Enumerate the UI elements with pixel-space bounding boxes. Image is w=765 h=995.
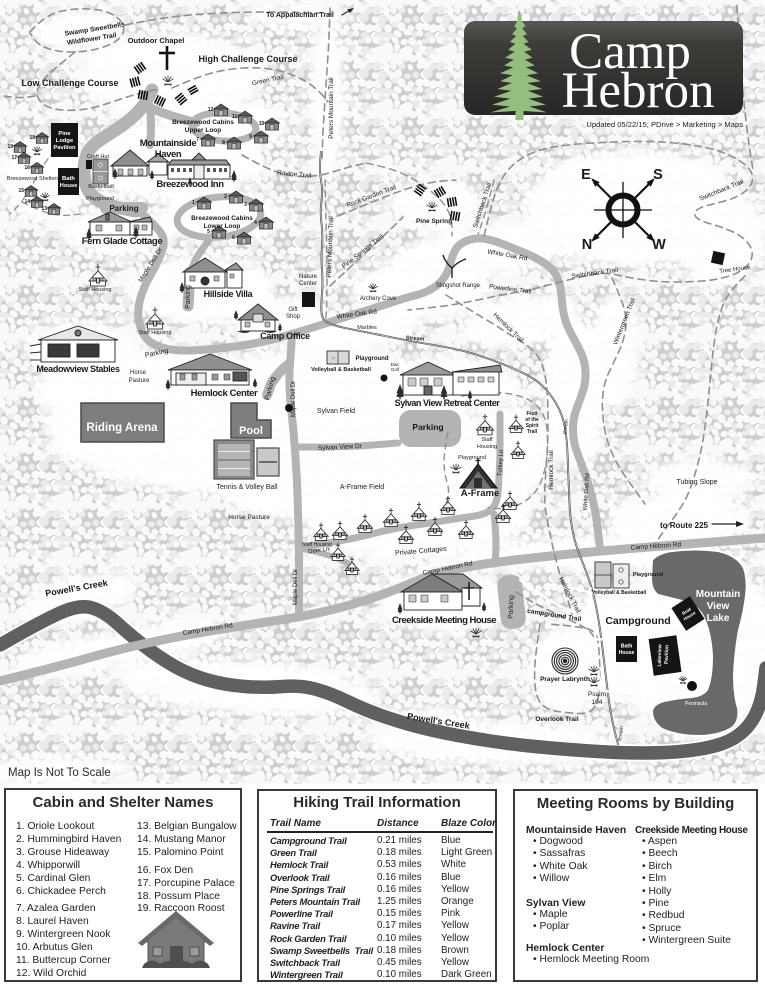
svg-text:Bath: Bath <box>621 644 633 650</box>
svg-text:Slingshot Range: Slingshot Range <box>436 283 481 289</box>
svg-text:E: E <box>581 167 591 183</box>
svg-text:19: 19 <box>7 144 13 150</box>
svg-text:Camp Office: Camp Office <box>260 331 310 341</box>
svg-text:Hebron: Hebron <box>562 63 715 119</box>
svg-text:Haven: Haven <box>155 149 182 160</box>
svg-text:Golf: Golf <box>391 367 400 372</box>
svg-text:Lakeview: Lakeview <box>657 644 664 667</box>
svg-text:Staff Housing: Staff Housing <box>139 330 172 336</box>
svg-text:7: 7 <box>196 137 199 143</box>
svg-text:Peters Mountain Trail: Peters Mountain Trail <box>328 77 335 139</box>
svg-text:4: 4 <box>254 220 257 226</box>
svg-text:Playground: Playground <box>86 196 114 202</box>
svg-text:Breezewood Cabins: Breezewood Cabins <box>191 215 253 222</box>
svg-text:House: House <box>619 650 635 656</box>
svg-text:Shop: Shop <box>286 314 301 320</box>
svg-text:Creekside Meeting House: Creekside Meeting House <box>392 615 496 626</box>
svg-text:Meadowview Stables: Meadowview Stables <box>36 364 120 374</box>
svg-text:Map Is Not To Scale: Map Is Not To Scale <box>8 767 111 779</box>
svg-text:Overlook Trail: Overlook Trail <box>535 716 579 723</box>
svg-text:10: 10 <box>259 121 265 127</box>
svg-text:To Appalachian Trail: To Appalachian Trail <box>266 12 334 19</box>
svg-text:18: 18 <box>29 135 35 141</box>
svg-text:A-Frame Field: A-Frame Field <box>340 484 384 491</box>
svg-text:Tennis & Volley Ball: Tennis & Volley Ball <box>216 484 278 491</box>
svg-text:Tubing Slope: Tubing Slope <box>677 479 718 486</box>
svg-text:Fern Glade Cottage: Fern Glade Cottage <box>82 236 163 247</box>
svg-text:Volleyball & Basketball: Volleyball & Basketball <box>592 590 647 596</box>
svg-text:12: 12 <box>208 107 214 113</box>
svg-text:Updated 05/22/15; PDrive > Mar: Updated 05/22/15; PDrive > Marketing > M… <box>586 120 743 129</box>
svg-text:Campground: Campground <box>605 615 670 627</box>
svg-text:Lower Loop: Lower Loop <box>204 223 241 230</box>
svg-text:N: N <box>582 237 592 253</box>
svg-text:High Challenge Course: High Challenge Course <box>198 54 297 64</box>
svg-text:Center: Center <box>299 281 317 287</box>
svg-text:Maple Dell Dr: Maple Dell Dr <box>291 381 297 417</box>
svg-text:Breezewood Cabins: Breezewood Cabins <box>172 119 234 126</box>
svg-text:Prayer Labrynth: Prayer Labrynth <box>540 676 590 683</box>
svg-text:6: 6 <box>232 235 235 241</box>
svg-text:Archery Cove: Archery Cove <box>360 296 397 302</box>
svg-text:Parking: Parking <box>185 285 192 309</box>
svg-text:Peninsula: Peninsula <box>685 701 707 707</box>
svg-text:Mountain: Mountain <box>696 589 740 600</box>
svg-text:W: W <box>652 237 666 253</box>
svg-text:14: 14 <box>24 199 30 205</box>
svg-text:Marbles: Marbles <box>357 325 377 331</box>
svg-text:3: 3 <box>244 202 247 208</box>
svg-text:Hemlock Center: Hemlock Center <box>191 388 258 399</box>
svg-text:Psalm: Psalm <box>588 691 606 698</box>
svg-text:Low Challenge Course: Low Challenge Course <box>21 78 118 88</box>
svg-text:Housing: Housing <box>477 444 497 450</box>
svg-text:Parking: Parking <box>109 204 138 213</box>
svg-text:Pavilion: Pavilion <box>53 145 76 151</box>
svg-text:Lodge: Lodge <box>56 138 74 144</box>
svg-text:Playground: Playground <box>355 356 388 362</box>
svg-text:9: 9 <box>249 134 252 140</box>
svg-text:Parking: Parking <box>508 595 516 619</box>
svg-text:Pine: Pine <box>58 131 71 137</box>
svg-text:Horse: Horse <box>130 370 147 376</box>
svg-text:Craft Hut: Craft Hut <box>87 154 109 160</box>
svg-text:Hemlock Trail: Hemlock Trail <box>548 450 555 490</box>
svg-text:A-Frame: A-Frame <box>461 488 500 499</box>
svg-text:Staff: Staff <box>481 437 493 443</box>
svg-text:Bath: Bath <box>62 176 75 182</box>
svg-text:17: 17 <box>11 155 17 161</box>
svg-text:Horse Pasture: Horse Pasture <box>228 514 270 521</box>
svg-text:Playground: Playground <box>633 572 663 578</box>
svg-text:Pool: Pool <box>239 425 263 437</box>
svg-text:Trail: Trail <box>527 429 538 435</box>
svg-text:Breezewood Shelters: Breezewood Shelters <box>7 176 60 182</box>
svg-text:Pasture: Pasture <box>129 378 150 384</box>
svg-text:View: View <box>707 601 730 612</box>
svg-text:Riding Arena: Riding Arena <box>86 422 158 434</box>
svg-text:Breezewood Inn: Breezewood Inn <box>156 179 224 190</box>
svg-text:Nature: Nature <box>299 274 318 280</box>
svg-text:to Route 225: to Route 225 <box>660 521 709 530</box>
svg-text:2: 2 <box>224 194 227 200</box>
svg-text:1: 1 <box>192 200 195 206</box>
svg-text:Pavilion: Pavilion <box>664 645 671 664</box>
svg-text:S: S <box>653 167 663 183</box>
svg-text:Hillside Villa: Hillside Villa <box>204 289 254 299</box>
svg-text:Maple Dell Dr: Maple Dell Dr <box>293 569 299 605</box>
svg-text:Lake: Lake <box>707 613 730 624</box>
svg-text:Mountainside: Mountainside <box>140 138 197 149</box>
svg-text:Basketball: Basketball <box>88 184 113 190</box>
svg-text:104: 104 <box>592 699 603 706</box>
svg-text:Staff Housing: Staff Housing <box>79 287 112 293</box>
svg-text:8: 8 <box>222 140 225 146</box>
svg-text:15: 15 <box>18 188 24 194</box>
svg-text:Sylvan Field: Sylvan Field <box>317 408 355 415</box>
svg-text:13: 13 <box>41 206 47 212</box>
svg-text:Gift: Gift <box>288 307 298 313</box>
svg-text:Pine Spring: Pine Spring <box>416 218 452 225</box>
svg-text:16: 16 <box>24 165 30 171</box>
svg-text:Playground: Playground <box>458 455 486 461</box>
svg-text:Sylvan View Retreat Center: Sylvan View Retreat Center <box>395 398 501 408</box>
svg-text:Volleyball & Basketball: Volleyball & Basketball <box>311 367 371 373</box>
svg-text:Upper Loop: Upper Loop <box>185 127 221 134</box>
svg-text:Outdoor Chapel: Outdoor Chapel <box>128 36 185 45</box>
svg-text:House: House <box>60 183 78 189</box>
svg-text:Parking: Parking <box>412 422 443 432</box>
